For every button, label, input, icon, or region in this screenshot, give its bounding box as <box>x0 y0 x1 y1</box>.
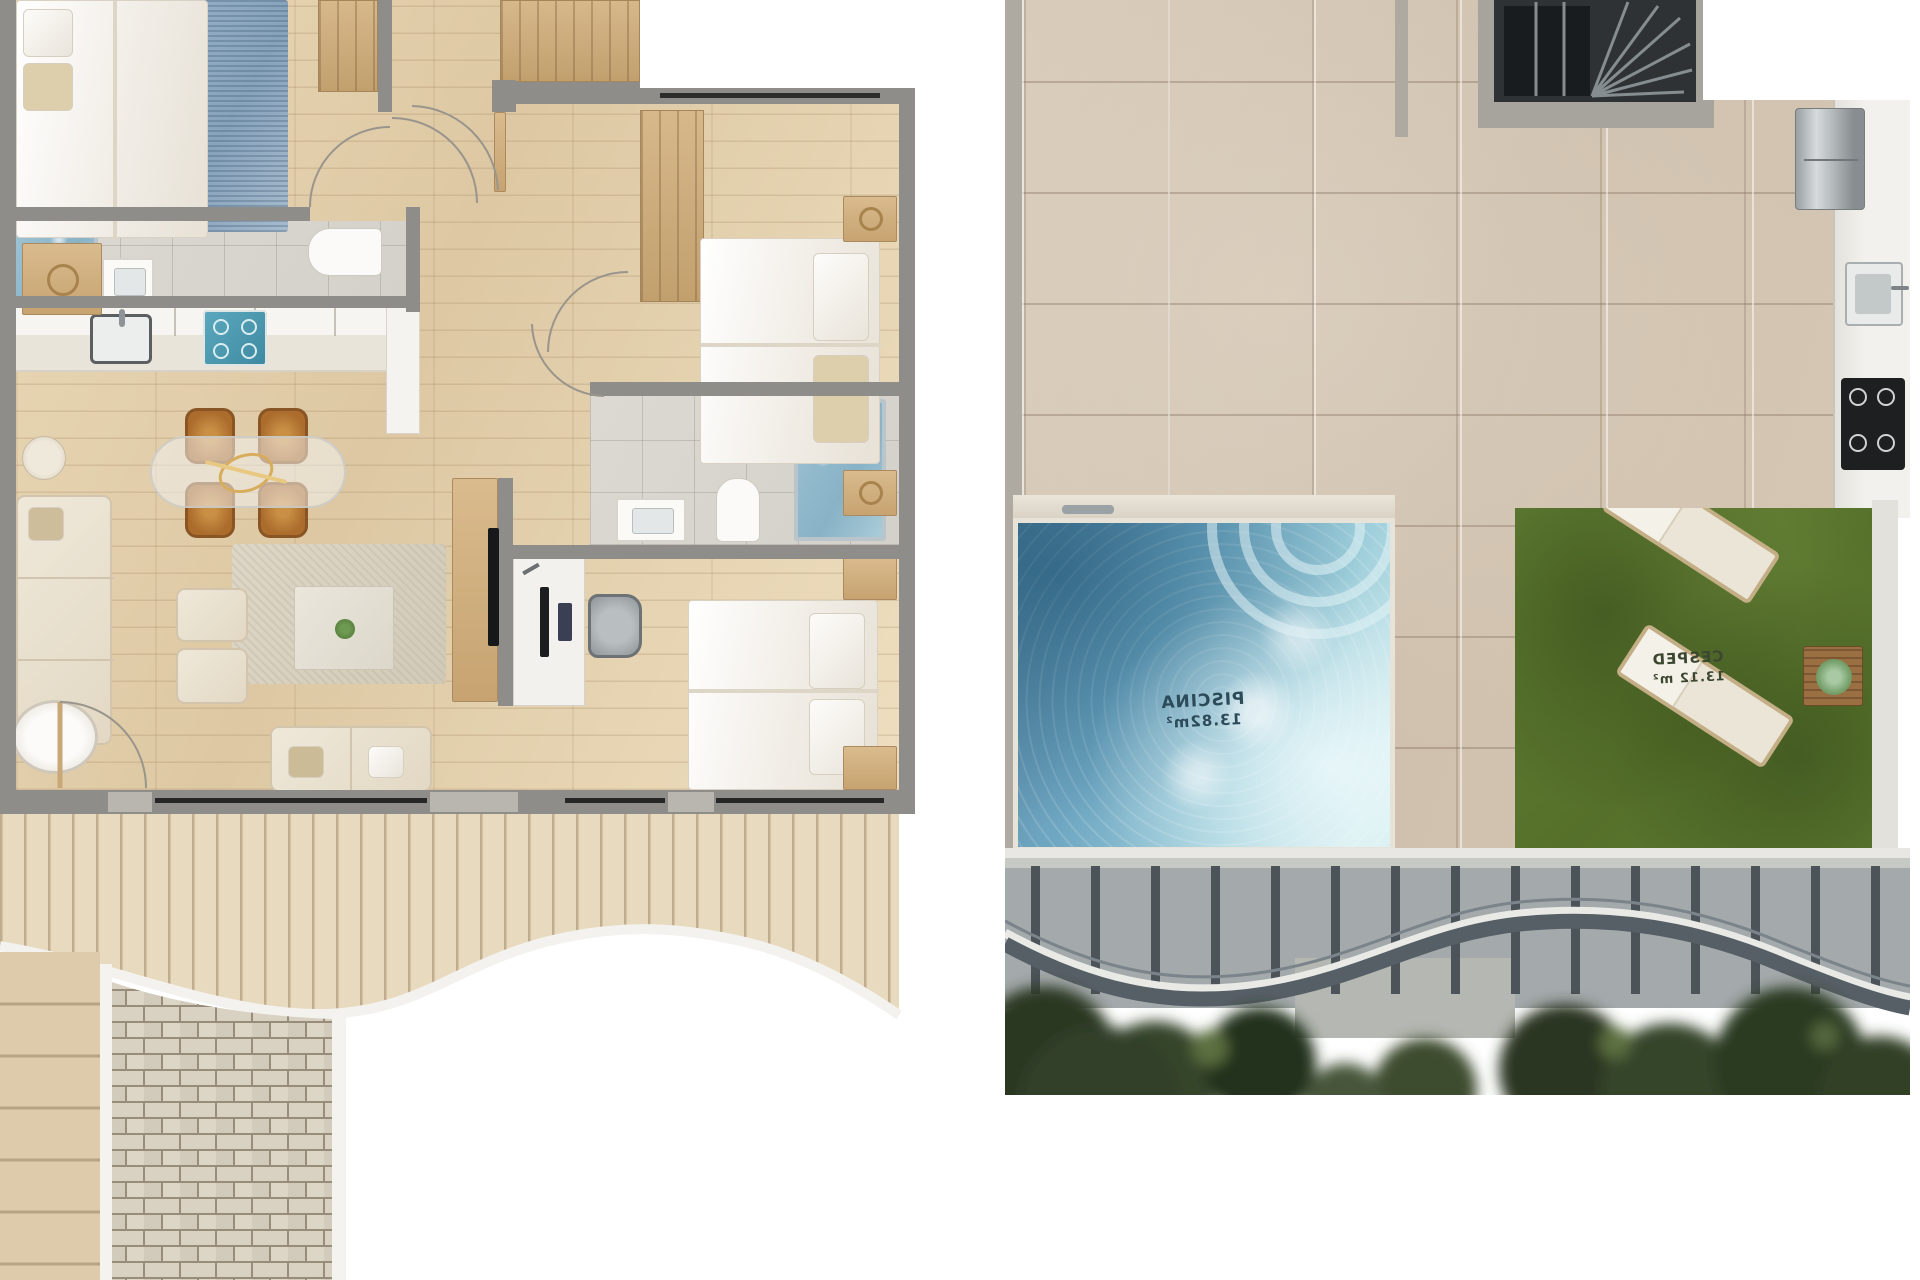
floor-plans-canvas: PISCINA 13.82m² CESPED 13.12 m² <box>0 0 1920 1280</box>
rooftop-plan: PISCINA 13.82m² CESPED 13.12 m² <box>1005 0 1910 1095</box>
pool-steps <box>1018 523 1390 643</box>
burner <box>1849 434 1867 452</box>
burner <box>1849 388 1867 406</box>
burner <box>1877 434 1895 452</box>
patio-curb <box>332 1016 346 1280</box>
outdoor-cooktop <box>1841 378 1905 470</box>
pool-label: PISCINA 13.82m² <box>1137 688 1269 735</box>
garden-steps <box>0 952 112 1280</box>
garden-table <box>1803 646 1863 706</box>
outdoor-fridge <box>1795 108 1865 210</box>
patio-herringbone <box>112 982 332 1280</box>
plant <box>1816 659 1852 695</box>
balcony-and-trees <box>1005 858 1910 1095</box>
stairwell <box>1478 0 1714 128</box>
roof-wall-inner <box>1395 0 1408 137</box>
door-arcs <box>0 0 915 815</box>
burner <box>1877 388 1895 406</box>
sun-lounger <box>1601 508 1781 605</box>
faucet <box>1891 286 1909 290</box>
lawn: CESPED 13.12 m² <box>1515 508 1877 852</box>
lawn-wall-right <box>1872 500 1898 852</box>
pool: PISCINA 13.82m² <box>1013 518 1395 852</box>
roof-white-notch <box>1703 0 1910 100</box>
lounger-backrest <box>1606 508 1688 543</box>
sink-basin <box>1855 274 1891 314</box>
outdoor-sink <box>1845 262 1903 326</box>
fridge-door-line <box>1804 159 1858 161</box>
pool-handrail <box>1062 505 1114 514</box>
lawn-label: CESPED 13.12 m² <box>1632 645 1744 691</box>
deck-and-patio <box>0 814 915 1280</box>
apartment-plan <box>0 0 915 1280</box>
sun-lounger <box>1615 623 1795 769</box>
